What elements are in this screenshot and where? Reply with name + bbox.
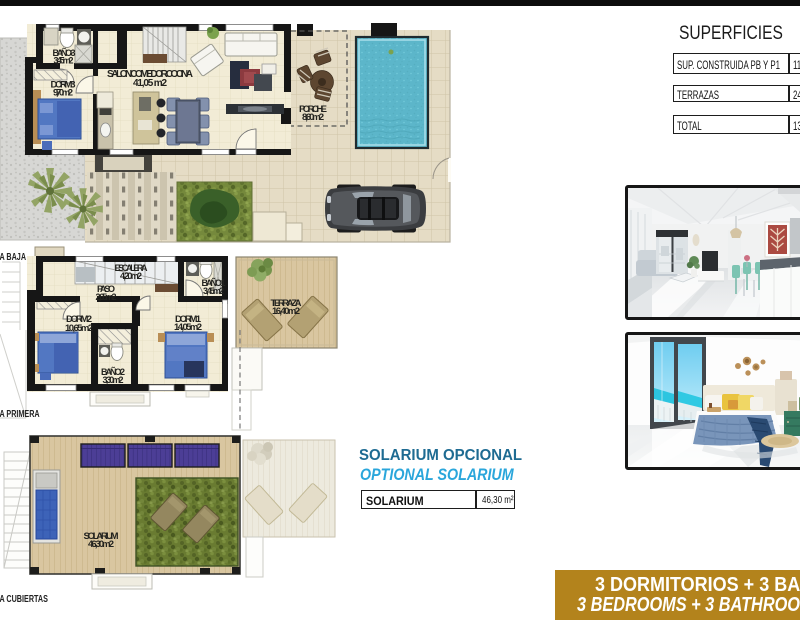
svg-text:9,70m2: 9,70m2 xyxy=(53,88,73,99)
svg-text:46,30m2: 46,30m2 xyxy=(88,539,114,550)
svg-text:3,30m2: 3,30m2 xyxy=(103,375,124,385)
svg-text:8,60m2: 8,60m2 xyxy=(302,112,324,123)
svg-text:10,65m2: 10,65m2 xyxy=(65,323,93,334)
svg-text:16,40m2: 16,40m2 xyxy=(272,306,300,317)
svg-text:14,05m2: 14,05m2 xyxy=(174,322,202,333)
svg-text:2,65m2: 2,65m2 xyxy=(96,292,117,302)
svg-text:41,05 m2: 41,05 m2 xyxy=(133,78,167,89)
svg-text:4,20m2: 4,20m2 xyxy=(120,271,142,281)
svg-text:3,45m2: 3,45m2 xyxy=(203,286,224,296)
svg-text:3,45m2: 3,45m2 xyxy=(54,56,74,66)
